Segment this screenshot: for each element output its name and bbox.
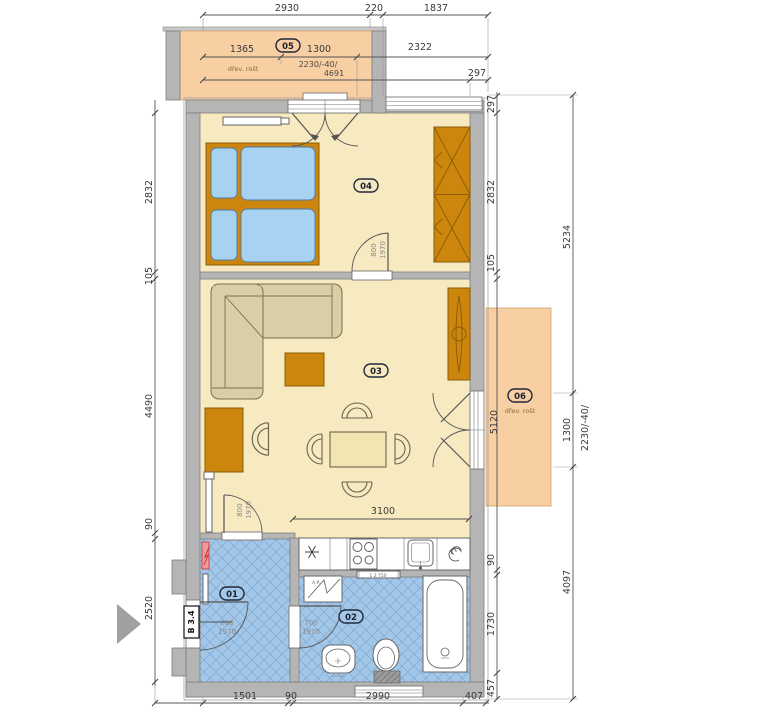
floor-plan-svg: A.P. 1 2 750 2930 [0,0,758,725]
dim-left-2520: 2520 [144,596,155,620]
dim-top-1837: 1837 [424,3,448,14]
dim-balcony-1365: 1365 [230,44,254,55]
coffee-table [285,353,324,386]
bathroom-number: 02 [345,613,357,623]
wall-right-upper [470,113,484,391]
toilet [373,639,399,671]
dim-left-4490: 4490 [144,394,155,418]
bedroom-radiator-valve [281,118,289,124]
floor-plan-page: A.P. 1 2 750 2930 [0,0,758,725]
wall-bedroom-living-right [392,272,470,279]
dim-outer-4097: 4097 [562,570,573,594]
dim-right-1730: 1730 [486,612,497,636]
side-cabinet [205,408,243,472]
balcony-top-surface: dřev. rošt [228,65,259,73]
living-radiator-valve [204,472,214,479]
dim-bottom-90: 90 [285,691,297,702]
hall-radiator [203,574,208,604]
washing-machine [304,576,342,602]
kitchen-counter [299,538,470,570]
dim-right-105: 105 [486,254,497,272]
dining-table [330,432,386,467]
bed2-pillow [211,210,237,260]
living-number: 03 [370,367,382,377]
balcony-right-number: 06 [514,392,526,402]
wall-left-upper [186,113,200,600]
dim-outer-1300: 1300 [562,418,573,442]
dim-right-2832: 2832 [486,180,497,204]
dim-top-2322: 2322 [408,42,432,53]
wall-living-hall-left [200,533,222,539]
living-hall-door-height: 1970 [245,501,253,519]
dim-bottom-1501: 1501 [233,691,257,702]
living-hall-door-width: 800 [236,503,244,516]
bedroom-window [386,97,482,111]
bed1-pillow [211,148,237,198]
kitchen [299,538,470,570]
dim-top-2930: 2930 [275,3,299,14]
wall-hall-bath-upper [290,538,299,606]
dim-left-90: 90 [144,518,155,530]
bathroom-door-width: 700 [304,619,317,627]
wall-right-lower [470,469,484,697]
balcony-top-spec1: 2230/-40/ [299,60,338,69]
tv-cabinet [448,288,470,380]
living-radiator [206,479,212,532]
bedroom-door-width: 800 [370,243,378,256]
bedroom-door-height: 1970 [379,241,387,259]
balcony-top-pier-right [372,31,386,113]
balcony-top-railing [163,27,386,31]
bed2-mattress [241,209,315,262]
balcony-top-floor [180,31,372,100]
hall-number: 01 [226,590,238,600]
bathroom-door-threshold [289,606,300,648]
dim-balcony-1300: 1300 [307,44,331,55]
dim-outer-5234: 5234 [562,225,573,249]
entrance-stub-upper [172,560,186,594]
toilet-base-hatch [374,671,400,683]
balcony-top-pier-left [166,31,180,100]
dim-left-105: 105 [144,267,155,285]
entrance-stub-lower [172,648,186,676]
washing-machine-label: A.P. [312,580,320,586]
bedroom-radiator [223,117,281,125]
bedroom-number: 04 [360,182,372,192]
dim-bottom-2990: 2990 [366,691,390,702]
dim-left-2832: 2832 [144,180,155,204]
balcony-door-threshold [288,100,360,113]
hall-floor-tiles [200,539,290,682]
dim-right-457: 457 [486,679,497,697]
section-mark-label: B 3.4 [187,610,196,633]
balcony-top-number: 05 [282,42,294,52]
balcony-right-surface: dřev. rošt [505,407,536,415]
entrance-arrow-icon [117,604,141,644]
entrance-door-width: 800 [220,619,233,627]
towel-rail-label: 1 2 750 [369,573,386,579]
dim-right-5120: 5120 [489,410,500,434]
dim-top-220: 220 [365,3,383,14]
wall-bedroom-living-left [200,272,352,279]
dim-right-90: 90 [486,554,497,566]
bed1-mattress [241,147,315,200]
bedroom-door-threshold [352,271,392,280]
dim-bottom-407: 407 [465,691,483,702]
entrance-door-height: 1970 [218,628,236,636]
dim-top-297: 297 [468,68,486,79]
dim-right-297: 297 [486,95,497,113]
living-hall-door-threshold [222,532,262,540]
bathroom-door-height: 1970 [302,628,320,636]
dim-living-3100: 3100 [371,506,395,517]
wall-bottom [186,682,484,697]
bathtub [423,576,467,672]
dim-outer-spec: 2230/-40/ [580,404,591,451]
wall-hall-bath-lower [290,648,299,682]
kitchen-sink-tap-dot [419,567,422,570]
balcony-top-spec2: 4691 [324,69,344,78]
balcony-door-sill [303,93,347,100]
